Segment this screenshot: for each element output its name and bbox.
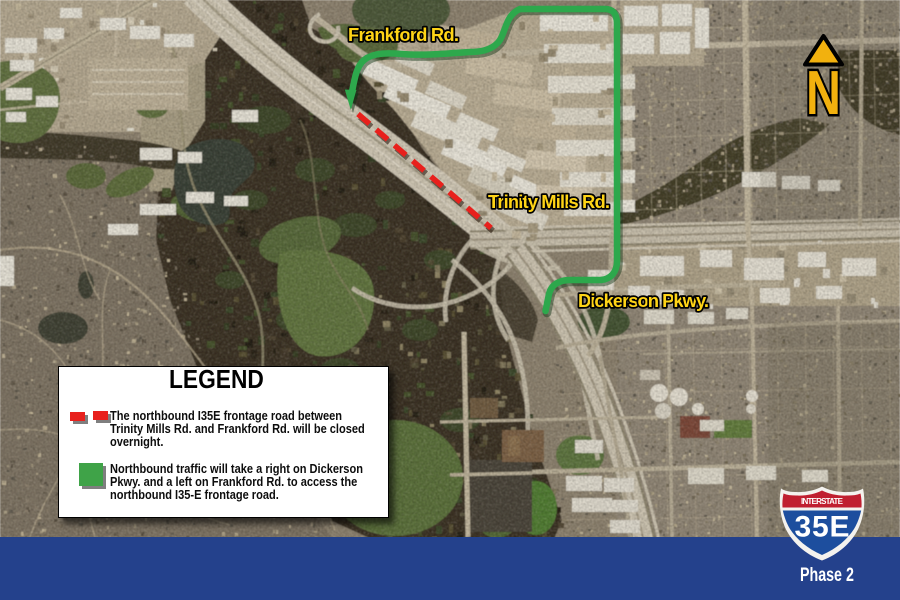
svg-text:Trinity Mills Rd.: Trinity Mills Rd. <box>488 191 610 212</box>
svg-text:N: N <box>806 58 841 127</box>
svg-text:Frankford Rd.: Frankford Rd. <box>348 24 459 45</box>
svg-text:35E: 35E <box>795 511 850 544</box>
svg-text:Dickerson Pkwy.: Dickerson Pkwy. <box>578 290 709 311</box>
svg-text:INTERSTATE: INTERSTATE <box>801 497 844 506</box>
